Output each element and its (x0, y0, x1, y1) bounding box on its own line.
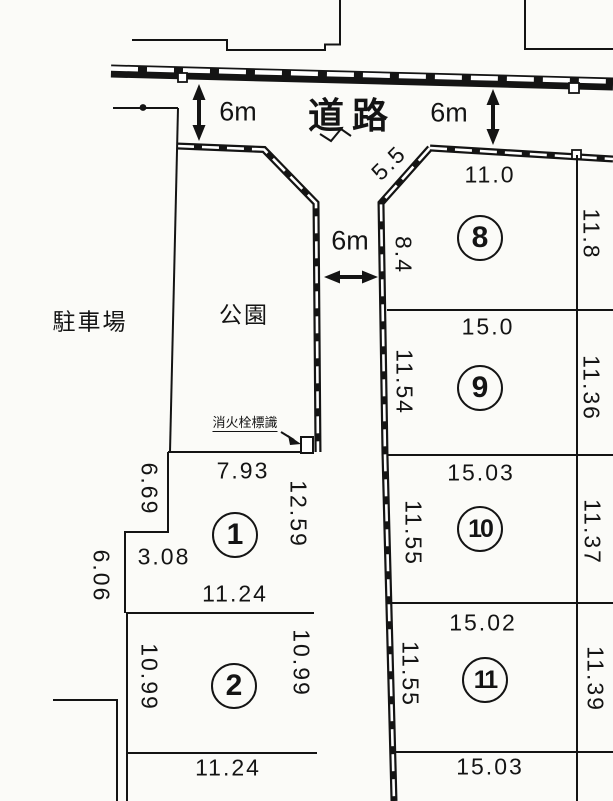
dim-p11-right: 11.39 (584, 646, 607, 712)
arrowhead-down (193, 125, 206, 141)
dim-p1-left-lower: 6.06 (90, 550, 113, 603)
boundary-marker-square (569, 83, 579, 93)
plot-11-number: 11 (474, 666, 496, 695)
road-label: 道路 (308, 98, 396, 134)
road-width-label-left: 6m (219, 99, 257, 126)
parking-label: 駐車場 (53, 311, 128, 334)
arrowhead-left (324, 271, 340, 284)
dim-p10-right: 11.37 (581, 499, 604, 565)
dim-p10-left: 11.55 (402, 500, 425, 566)
road-width-arrow-middle (324, 271, 378, 284)
dim-p9-left: 11.54 (393, 349, 416, 415)
plot-10-number: 10 (468, 515, 492, 544)
road-width-arrow-right (487, 89, 500, 145)
arrowhead-up (487, 89, 500, 105)
plot-8-number: 8 (472, 221, 489, 255)
plot-2-number: 2 (226, 669, 243, 703)
dim-p9-right: 11.36 (580, 355, 603, 421)
plot-1-number: 1 (227, 518, 244, 552)
dim-p1-right: 12.59 (287, 480, 310, 548)
plot-8-circle: 8 (457, 215, 503, 261)
plot8-north-band-dashes (430, 148, 613, 159)
park-boundary-band-dashes (177, 146, 318, 452)
plot-10-circle: 10 (457, 506, 503, 552)
hydrant-label: 消火栓標識 (212, 416, 277, 432)
plot-11-circle: 11 (462, 657, 508, 703)
dim-p11-bottom: 15.03 (456, 756, 524, 779)
dim-p9-top: 15.0 (462, 316, 515, 339)
road-width-arrow-left (193, 84, 206, 141)
plot-2-circle: 2 (211, 663, 257, 709)
fire-hydrant-marker (301, 437, 313, 453)
dim-p2-right: 10.99 (290, 629, 313, 697)
dim-p1-bottom: 11.24 (202, 583, 268, 606)
plot-1-circle: 1 (212, 512, 258, 558)
dim-p8-left: 8.4 (392, 236, 415, 274)
dim-p1-top: 7.93 (217, 460, 270, 483)
park-west-boundary (170, 108, 178, 452)
road-width-label-right: 6m (430, 100, 468, 127)
arrowhead-down (487, 129, 500, 145)
road-width-label-middle: 6m (331, 228, 369, 255)
site-plan-map: 道路 6m 6m 6m 公園 駐車場 消火栓標識 1 2 8 9 10 11 7… (0, 0, 613, 801)
dim-p11-left: 11.55 (399, 641, 422, 707)
dim-p11-top: 15.02 (449, 612, 517, 635)
building-outline-left (132, 0, 340, 50)
building-outline-right (525, 0, 613, 49)
hydrant-leader-arrowhead (288, 435, 301, 445)
arrowhead-right (362, 271, 378, 284)
dim-p1-step: 3.08 (138, 546, 191, 569)
dim-p2-left: 10.99 (138, 643, 161, 711)
boundary-marker-dot (140, 104, 147, 111)
plot-9-number: 9 (472, 371, 489, 405)
dim-p8-top: 11.0 (464, 164, 515, 187)
boundary-marker-square (178, 73, 187, 82)
dim-p1-left-upper: 6.69 (138, 463, 161, 516)
park-label: 公園 (219, 304, 269, 327)
dim-p10-top: 15.03 (447, 462, 515, 485)
dim-p8-right: 11.8 (580, 208, 603, 259)
arrowhead-up (193, 84, 206, 100)
dim-p2-bottom: 11.24 (195, 757, 261, 780)
parking-south-boundary (53, 700, 117, 801)
plot-9-circle: 9 (457, 365, 503, 411)
park-boundary-band (177, 146, 318, 452)
